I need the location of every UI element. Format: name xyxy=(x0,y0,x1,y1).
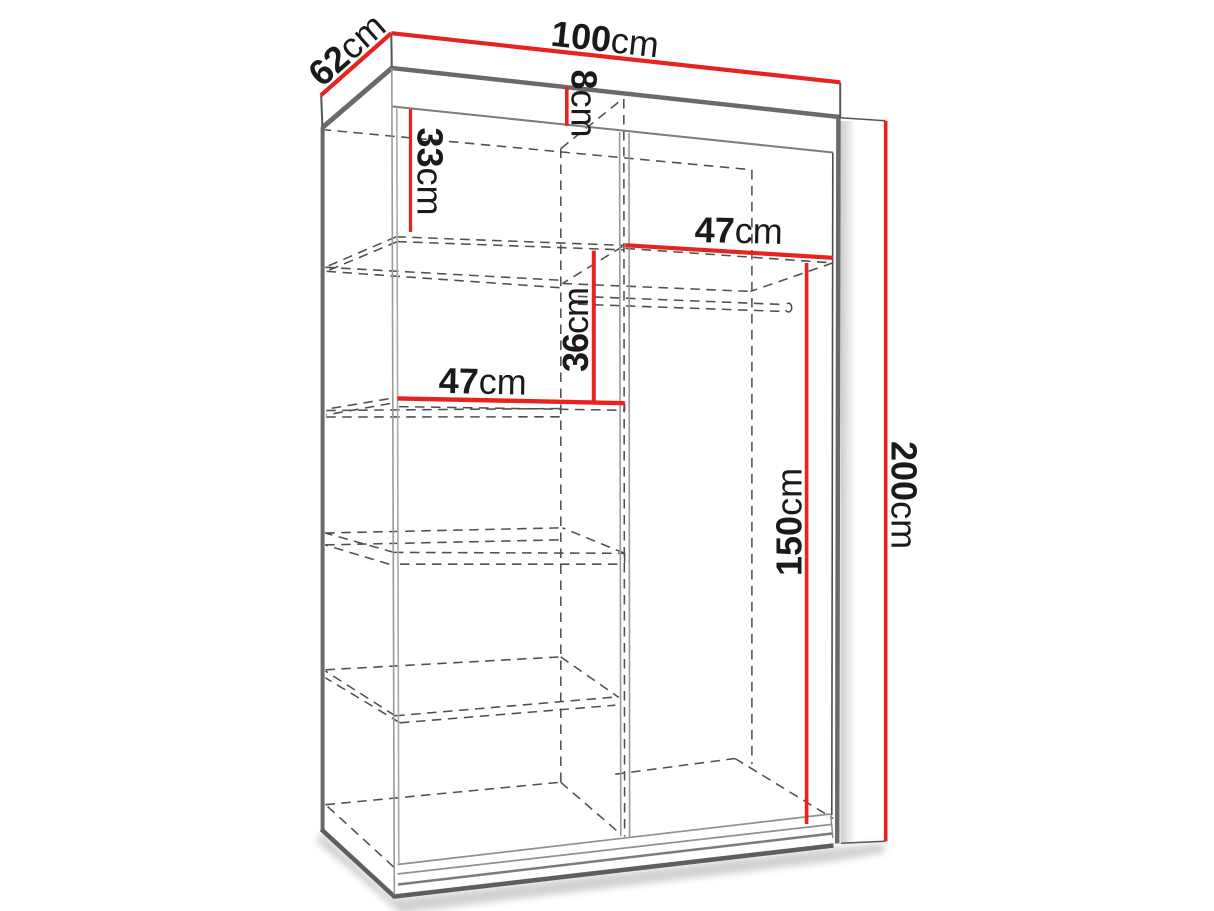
svg-text:36cm: 36cm xyxy=(555,288,596,372)
svg-text:8cm: 8cm xyxy=(564,70,605,138)
svg-text:47cm: 47cm xyxy=(438,360,527,403)
svg-text:33cm: 33cm xyxy=(409,128,450,216)
svg-text:150cm: 150cm xyxy=(769,468,810,576)
svg-text:47cm: 47cm xyxy=(694,209,783,252)
svg-text:200cm: 200cm xyxy=(884,441,925,549)
